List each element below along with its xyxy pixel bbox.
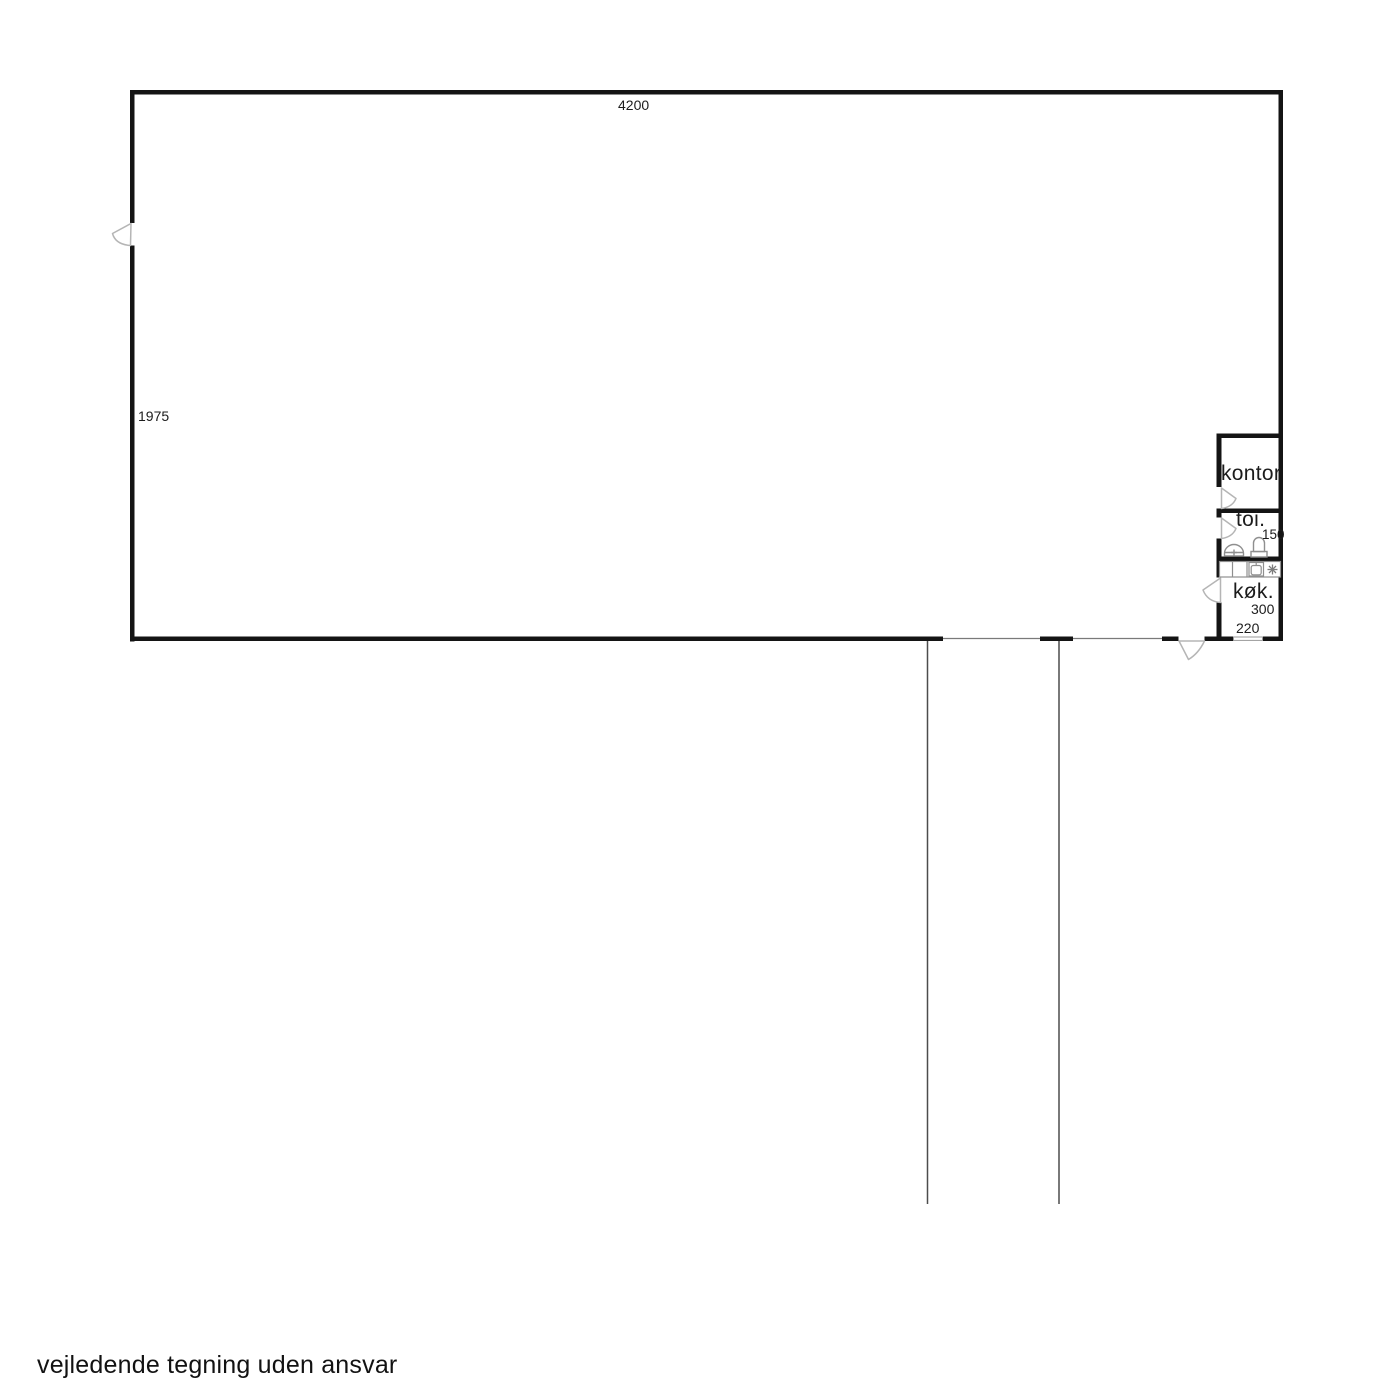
toi-fixtures xyxy=(1225,538,1268,558)
kok-exterior-door-icon xyxy=(1179,641,1205,660)
room-label-kok: køk. xyxy=(1233,581,1274,602)
site-boundary-lines xyxy=(928,641,1060,1204)
dim-kok-width: 220 xyxy=(1236,621,1259,635)
wall-bottom-pier xyxy=(1040,637,1073,642)
wall-bottom-main xyxy=(130,637,943,642)
kok-window-icon xyxy=(1234,637,1263,640)
stove-burner-icon xyxy=(1268,565,1278,575)
kontor-door-icon xyxy=(1222,488,1237,509)
wall-left-lower xyxy=(130,246,135,642)
hall-walls xyxy=(130,90,1283,642)
hall-left-door-icon xyxy=(113,224,132,246)
kitchen-sink-icon xyxy=(1249,563,1264,577)
wall-bottom-stub xyxy=(1162,637,1179,642)
room-label-toi: toi. xyxy=(1236,509,1265,530)
dim-kok-depth: 300 xyxy=(1251,602,1274,616)
room-label-kontor: kontor xyxy=(1221,463,1281,484)
toi-kok-wall xyxy=(1217,557,1284,562)
dim-toi-width: 150 xyxy=(1262,528,1285,542)
kitchen-counter-icon xyxy=(1220,562,1281,578)
toi-door-icon xyxy=(1222,518,1237,539)
floor-plan-drawing xyxy=(0,0,1400,1400)
floor-plan-canvas: 4200 1975 kontor toi. 150 køk. 300 220 v… xyxy=(0,0,1400,1400)
door-symbols xyxy=(113,224,1237,660)
wall-bottom-corner xyxy=(1263,637,1283,642)
wash-basin-icon xyxy=(1225,545,1244,557)
wall-top xyxy=(130,90,1283,95)
dim-hall-width: 4200 xyxy=(618,98,649,112)
wall-left-upper xyxy=(130,90,135,223)
disclaimer-text: vejledende tegning uden ansvar xyxy=(37,1353,397,1378)
kok-door-icon xyxy=(1203,578,1221,603)
dim-hall-depth: 1975 xyxy=(138,409,169,423)
kontor-top-wall xyxy=(1217,434,1284,439)
partition-vert-4 xyxy=(1217,603,1222,642)
